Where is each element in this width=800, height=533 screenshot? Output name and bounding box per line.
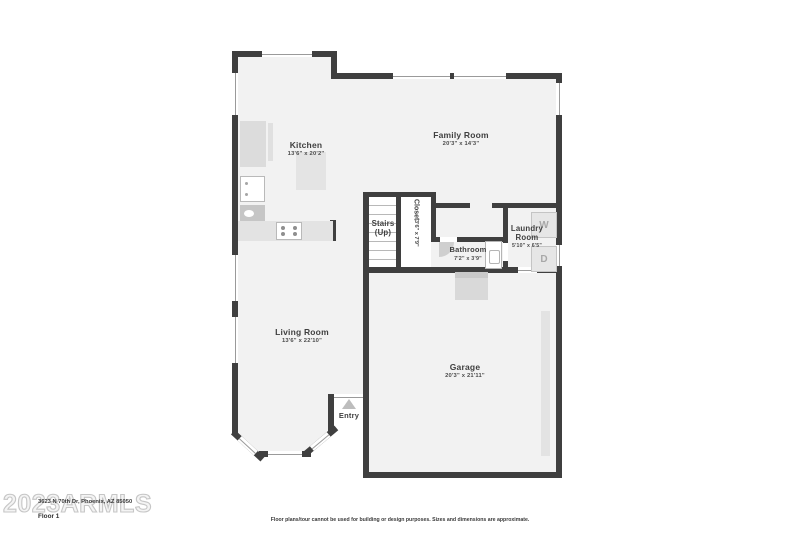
kitchen-label: Kitchen 13'6" x 20'2" [288,140,325,158]
bathroom-label: Bathroom 7'2" x 3'9" [449,245,486,263]
window [232,255,238,301]
window [262,51,312,57]
room-name: Entry [339,411,359,421]
wall [363,192,369,478]
entry-arrow-icon [342,399,356,409]
stairs-line2: (Up) [372,228,395,237]
room-name: Garage [445,362,485,372]
room-dims: 13'6" x 22'10" [275,337,329,345]
garage-steps [455,272,488,300]
room-name: Family Room [433,130,489,140]
room-name: Living Room [275,327,329,337]
room-name: Kitchen [288,140,325,150]
bathroom-vanity [485,241,502,269]
window [232,73,238,115]
window [556,83,562,115]
living-room-label: Living Room 13'6" x 22'10" [275,327,329,345]
entry-alcove-cutout [334,397,364,480]
wall [431,203,436,242]
room-dims: 3'6" x 7'9" [413,220,419,247]
room-dims: 13'6" x 20'2" [288,150,325,158]
oven [240,176,265,202]
wall [396,192,401,270]
stairs-label: Stairs (Up) [372,219,395,237]
window [268,451,302,457]
laundry-room-label: Laundry Room 5'10" x 6'5" [511,224,543,250]
cooktop [276,222,302,240]
room-dims: 20'3" x 14'3" [433,140,489,148]
room-kitchen-living-fill [235,55,335,455]
family-room-label: Family Room 20'3" x 14'3" [433,130,489,148]
room-name-line1: Laundry [511,224,543,233]
closet-label: Closet 3'6" x 7'9" [403,199,429,265]
kitchen-sink [240,205,265,222]
room-dims: 20'3" x 21'11" [445,372,485,380]
room-name: Bathroom [449,245,486,255]
wall [492,203,556,208]
stairs-line1: Stairs [372,219,395,228]
wall [363,472,562,478]
garage-label: Garage 20'3" x 21'11" [445,362,485,380]
disclaimer-text: Floor plans/tour cannot be used for buil… [271,517,530,523]
property-address: 3623 N 70th Dr, Phoenix, AZ 85050 [38,499,132,505]
laundry-door-opening [503,243,508,261]
garage-door-strip [541,311,550,456]
wall [556,73,562,478]
entry-label: Entry [339,411,359,421]
wall [431,203,470,208]
wall [503,261,508,273]
floor-label: Floor 1 [38,513,59,520]
room-dims: 5'10" x 6'5" [511,242,543,250]
room-name-line2: Room [511,233,543,242]
room-dims: 7'2" x 3'9" [449,255,486,263]
room-name: Closet [413,199,420,220]
floor-plan-page: W D Kitchen 13'6" x 20'2" Family Room 20… [0,0,800,533]
dryer-label: D [540,254,547,265]
window [454,73,506,79]
fridge-counter [240,121,266,167]
window [393,73,450,79]
window [232,317,238,363]
counter-strip [268,123,273,161]
wall [503,203,508,243]
